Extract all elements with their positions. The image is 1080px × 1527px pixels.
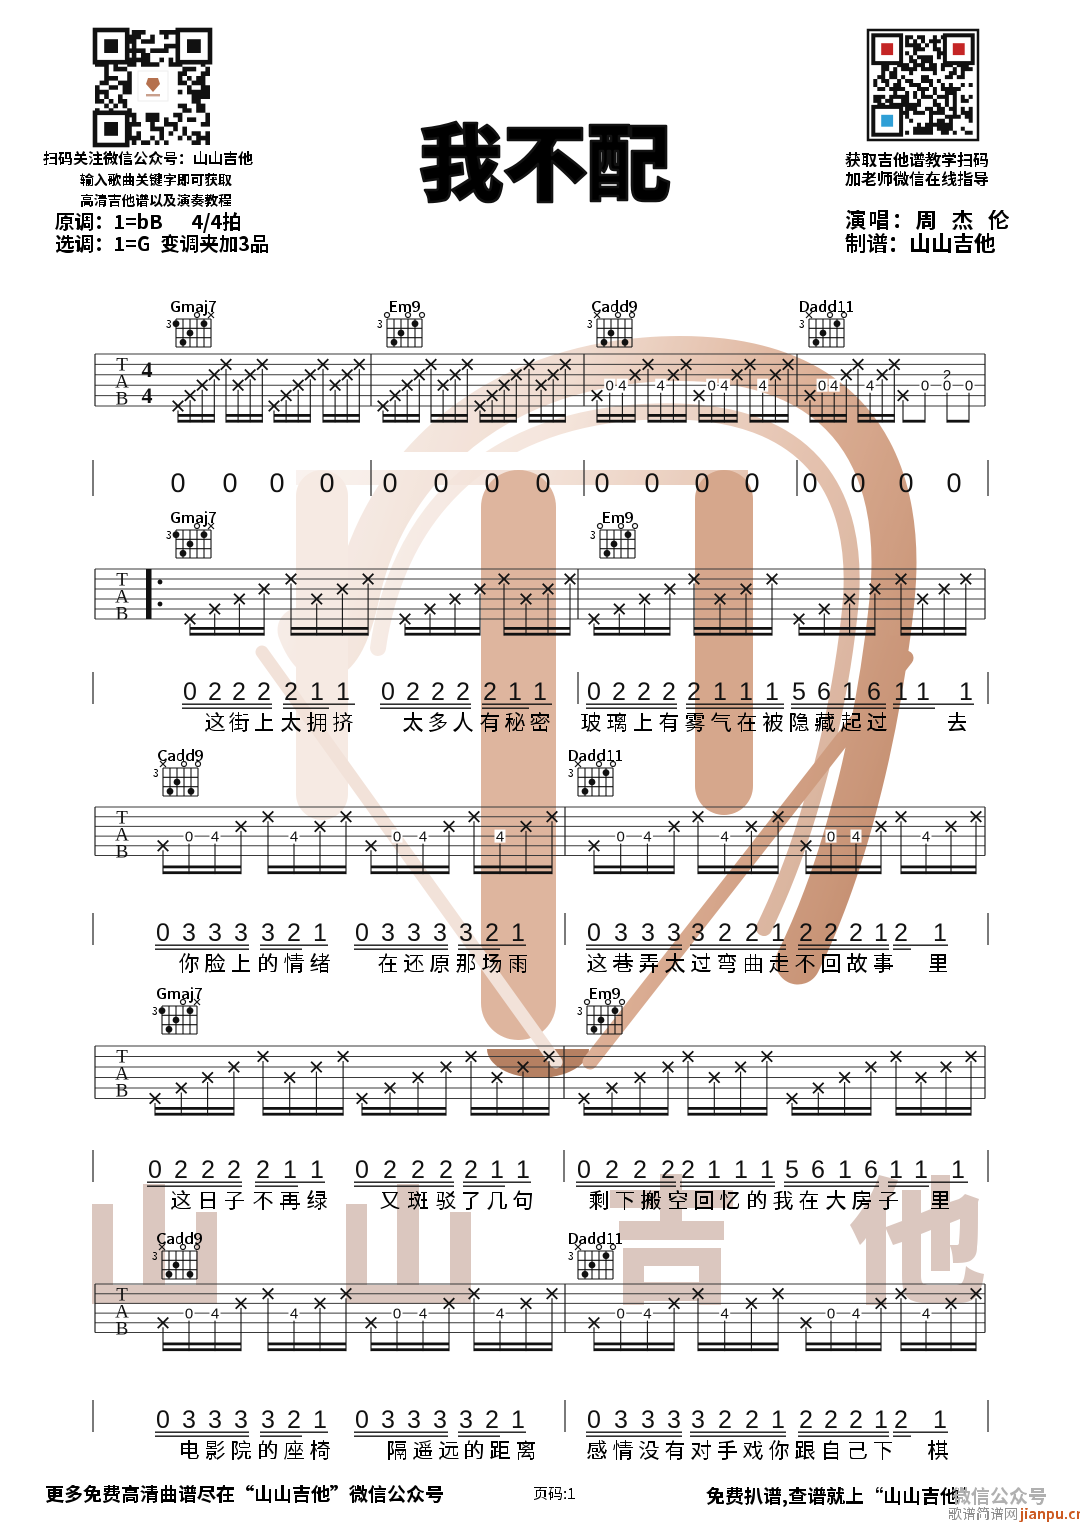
svg-text:4: 4 — [290, 829, 298, 846]
svg-text:4: 4 — [720, 378, 728, 395]
svg-text:4: 4 — [643, 1306, 651, 1323]
svg-text:0: 0 — [965, 378, 973, 395]
svg-text:B: B — [116, 604, 129, 625]
svg-text:4: 4 — [211, 1306, 219, 1323]
svg-text:4: 4 — [922, 1306, 930, 1323]
svg-text:4: 4 — [721, 829, 729, 846]
svg-text:B: B — [116, 842, 129, 863]
svg-text:4: 4 — [866, 378, 874, 395]
svg-text:4: 4 — [852, 829, 860, 846]
svg-text:0: 0 — [606, 378, 614, 395]
svg-text:0: 0 — [393, 829, 401, 846]
svg-text:4: 4 — [419, 1306, 427, 1323]
svg-text:4: 4 — [496, 829, 504, 846]
svg-text:0: 0 — [827, 1306, 835, 1323]
svg-text:0: 0 — [708, 378, 716, 395]
svg-text:4: 4 — [830, 378, 838, 395]
svg-text:4: 4 — [922, 829, 930, 846]
svg-text:B: B — [116, 389, 129, 410]
svg-text:B: B — [116, 1081, 129, 1102]
svg-text:0: 0 — [617, 829, 625, 846]
svg-text:0: 0 — [617, 1306, 625, 1323]
svg-text:4: 4 — [852, 1306, 860, 1323]
svg-text:4: 4 — [657, 378, 665, 395]
svg-text:4: 4 — [618, 378, 626, 395]
svg-text:4: 4 — [759, 378, 767, 395]
svg-text:4: 4 — [290, 1306, 298, 1323]
svg-text:0: 0 — [943, 378, 951, 395]
svg-text:0: 0 — [185, 829, 193, 846]
svg-text:4: 4 — [721, 1306, 729, 1323]
svg-text:4: 4 — [643, 829, 651, 846]
svg-text:4: 4 — [419, 829, 427, 846]
svg-text:0: 0 — [921, 378, 929, 395]
svg-text:4: 4 — [142, 383, 153, 408]
svg-text:4: 4 — [142, 357, 153, 382]
svg-text:0: 0 — [818, 378, 826, 395]
svg-text:B: B — [116, 1319, 129, 1340]
svg-text:0: 0 — [185, 1306, 193, 1323]
svg-text:0: 0 — [393, 1306, 401, 1323]
svg-text:4: 4 — [211, 829, 219, 846]
svg-text:4: 4 — [496, 1306, 504, 1323]
svg-text:0: 0 — [827, 829, 835, 846]
